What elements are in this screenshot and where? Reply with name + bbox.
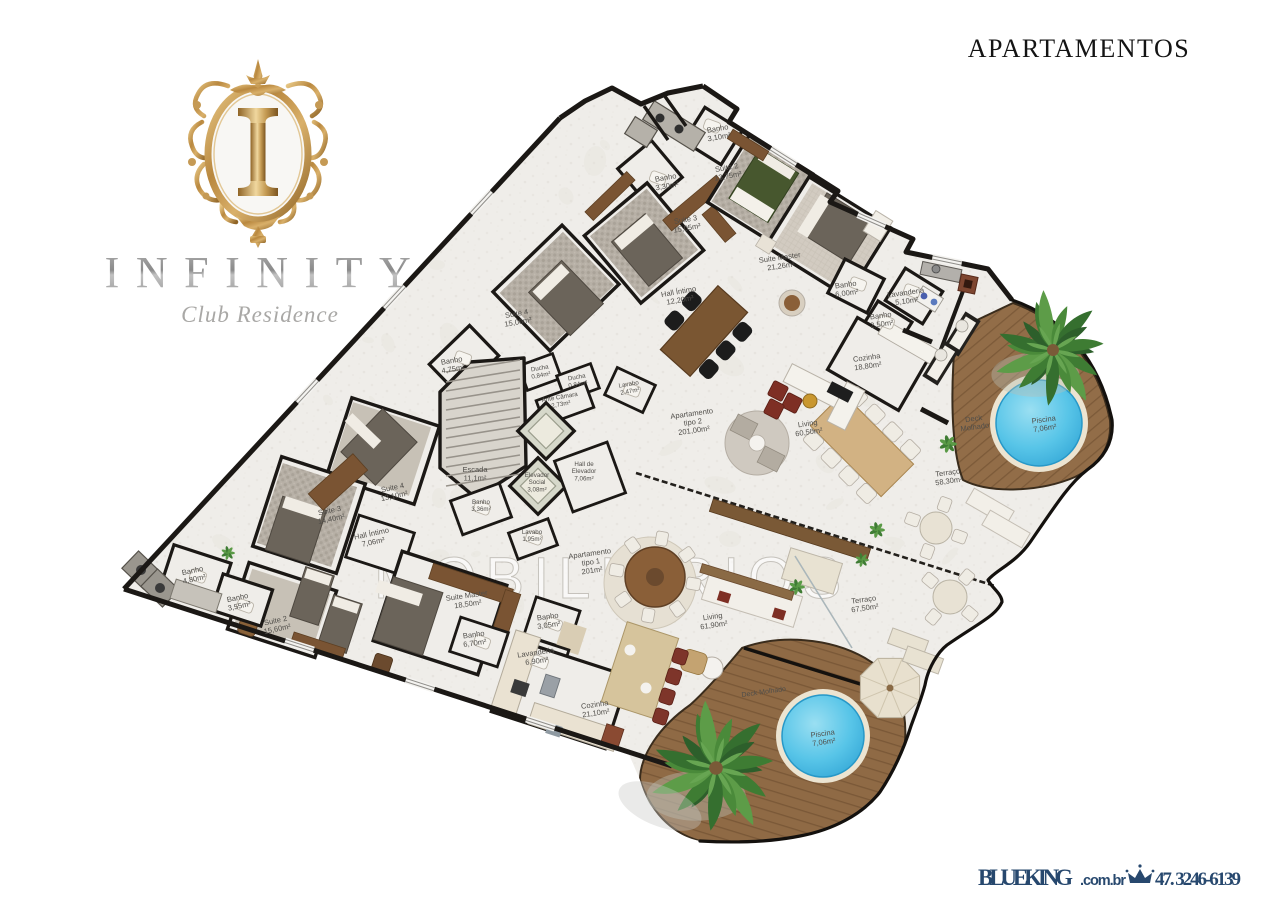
svg-text:.com.br: .com.br: [1080, 873, 1126, 889]
svg-text:INFINITY: INFINITY: [105, 248, 428, 297]
svg-text:Lavabo1,95m²: Lavabo1,95m²: [522, 529, 543, 543]
svg-text:Piscina7,06m²: Piscina7,06m²: [1031, 413, 1058, 434]
svg-text:BLUEKING: BLUEKING: [978, 865, 1073, 890]
svg-text:47. 3246-6139: 47. 3246-6139: [1155, 869, 1241, 890]
svg-text:Hall deElevador7,06m²: Hall deElevador7,06m²: [572, 461, 596, 482]
svg-text:APARTAMENTOS: APARTAMENTOS: [968, 34, 1190, 63]
svg-text:Banho2,50m²: Banho2,50m²: [868, 309, 894, 330]
svg-text:Banho6,70m²: Banho6,70m²: [461, 628, 487, 649]
svg-text:Banho3,05m²: Banho3,05m²: [535, 610, 561, 631]
svg-text:Piscina7,06m²: Piscina7,06m²: [810, 727, 837, 748]
svg-text:Escada11,1m²: Escada11,1m²: [462, 465, 488, 483]
svg-text:Banho3,36m²: Banho3,36m²: [471, 499, 490, 513]
svg-text:Banho6,00m²: Banho6,00m²: [833, 278, 859, 299]
svg-text:Club Residence: Club Residence: [181, 302, 339, 327]
